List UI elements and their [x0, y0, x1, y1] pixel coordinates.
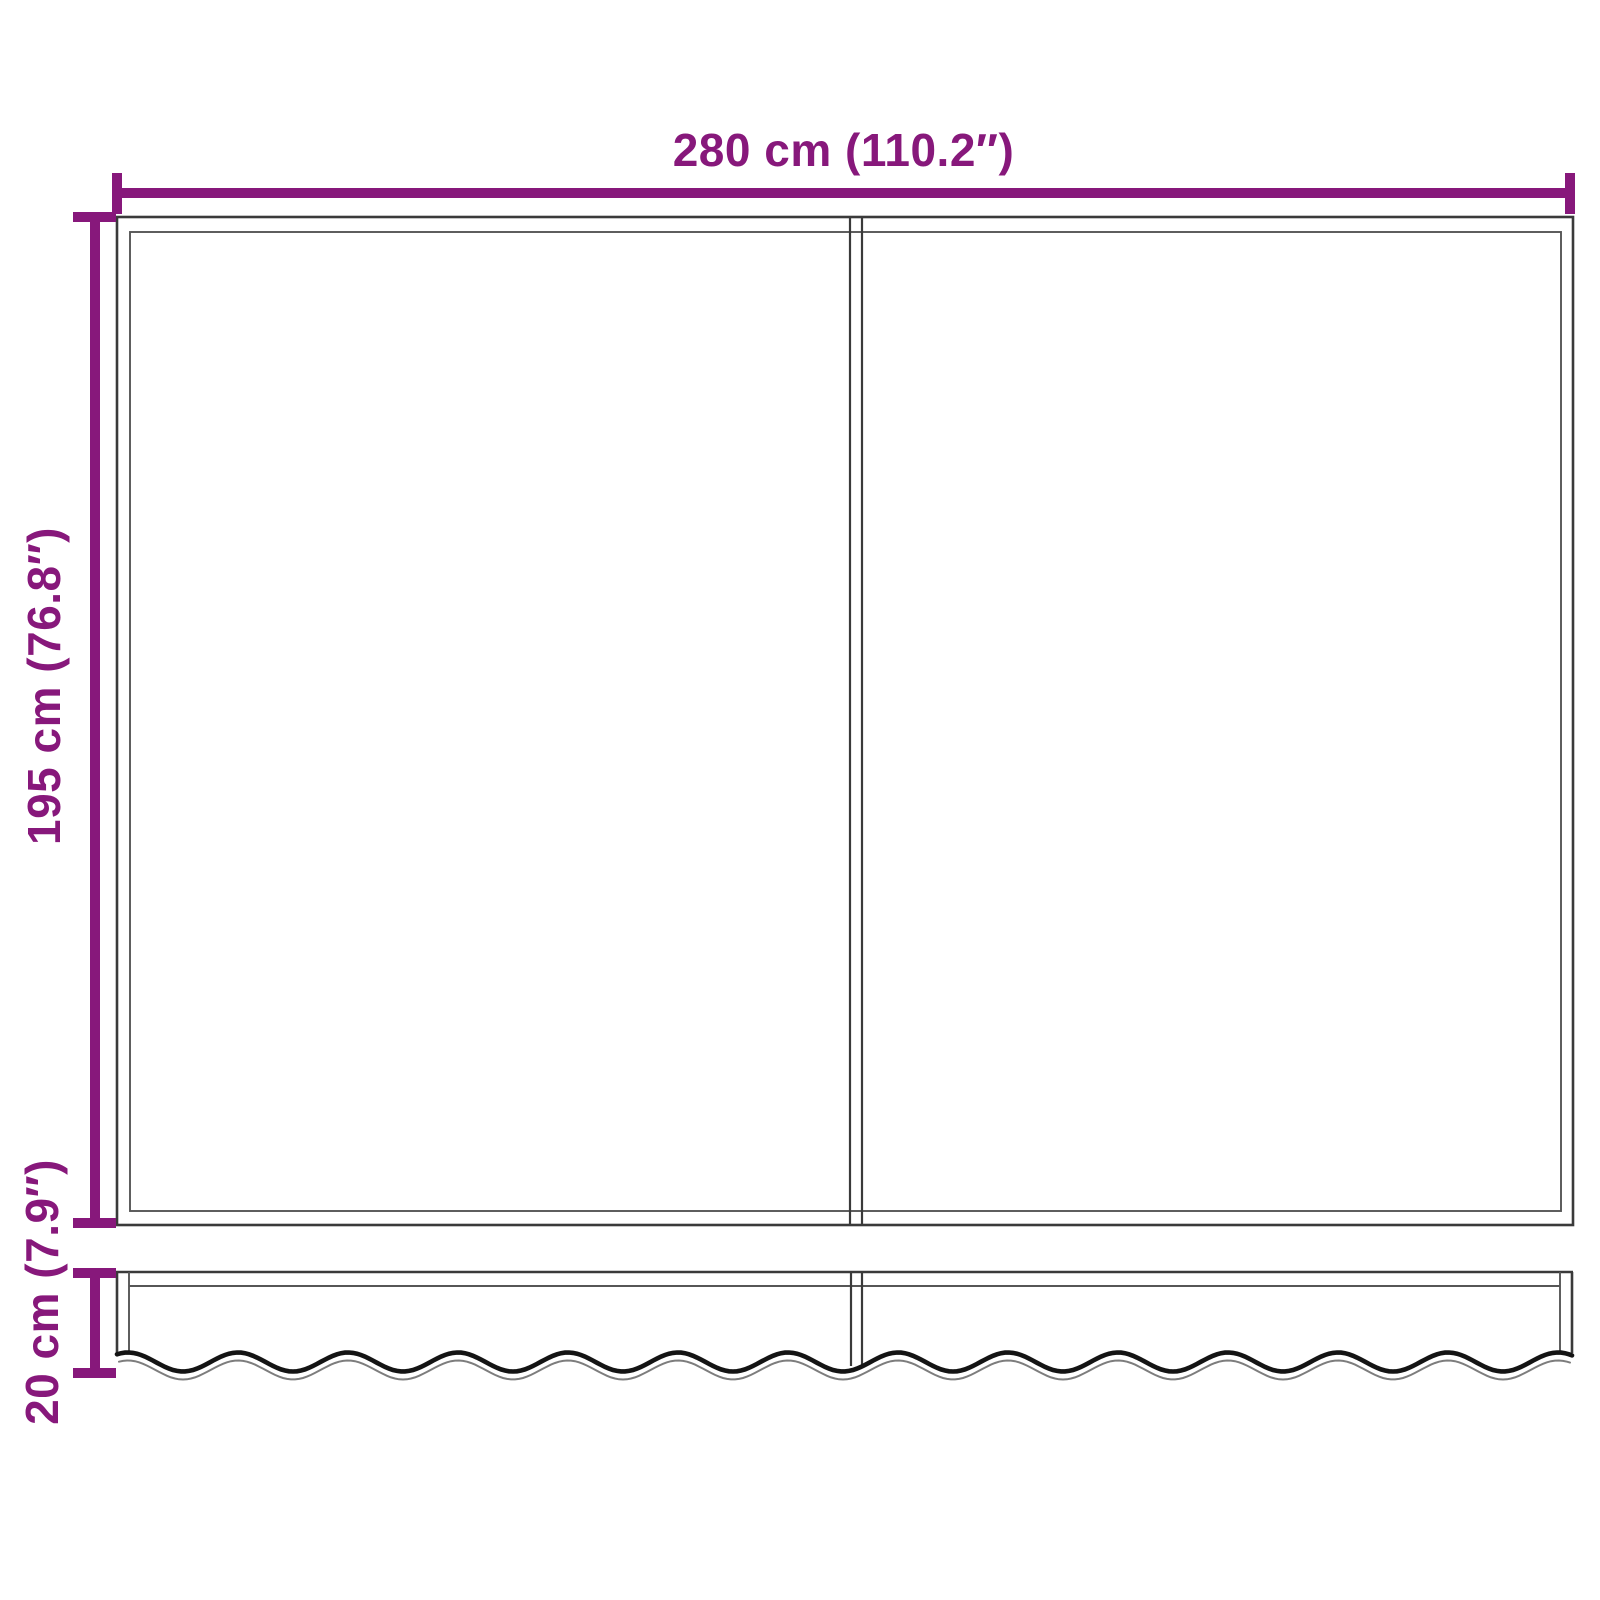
- height-dimension-label: 195 cm (76.8″): [20, 527, 68, 845]
- valance-height-dimension-label: 20 cm (7.9″): [18, 1159, 66, 1425]
- fabric-panel-inner-outline: [130, 232, 1561, 1211]
- dimension-diagram: 280 cm (110.2″) 195 cm (76.8″) 20 cm (7.…: [0, 0, 1600, 1600]
- awning-fabric-drawing: [0, 0, 1600, 1600]
- dimension-lines: [73, 173, 1570, 1373]
- fabric-panel-outline: [117, 217, 1573, 1225]
- valance: [116, 1272, 1573, 1380]
- width-dimension-label: 280 cm (110.2″): [117, 126, 1570, 174]
- fabric-panel: [117, 217, 1573, 1225]
